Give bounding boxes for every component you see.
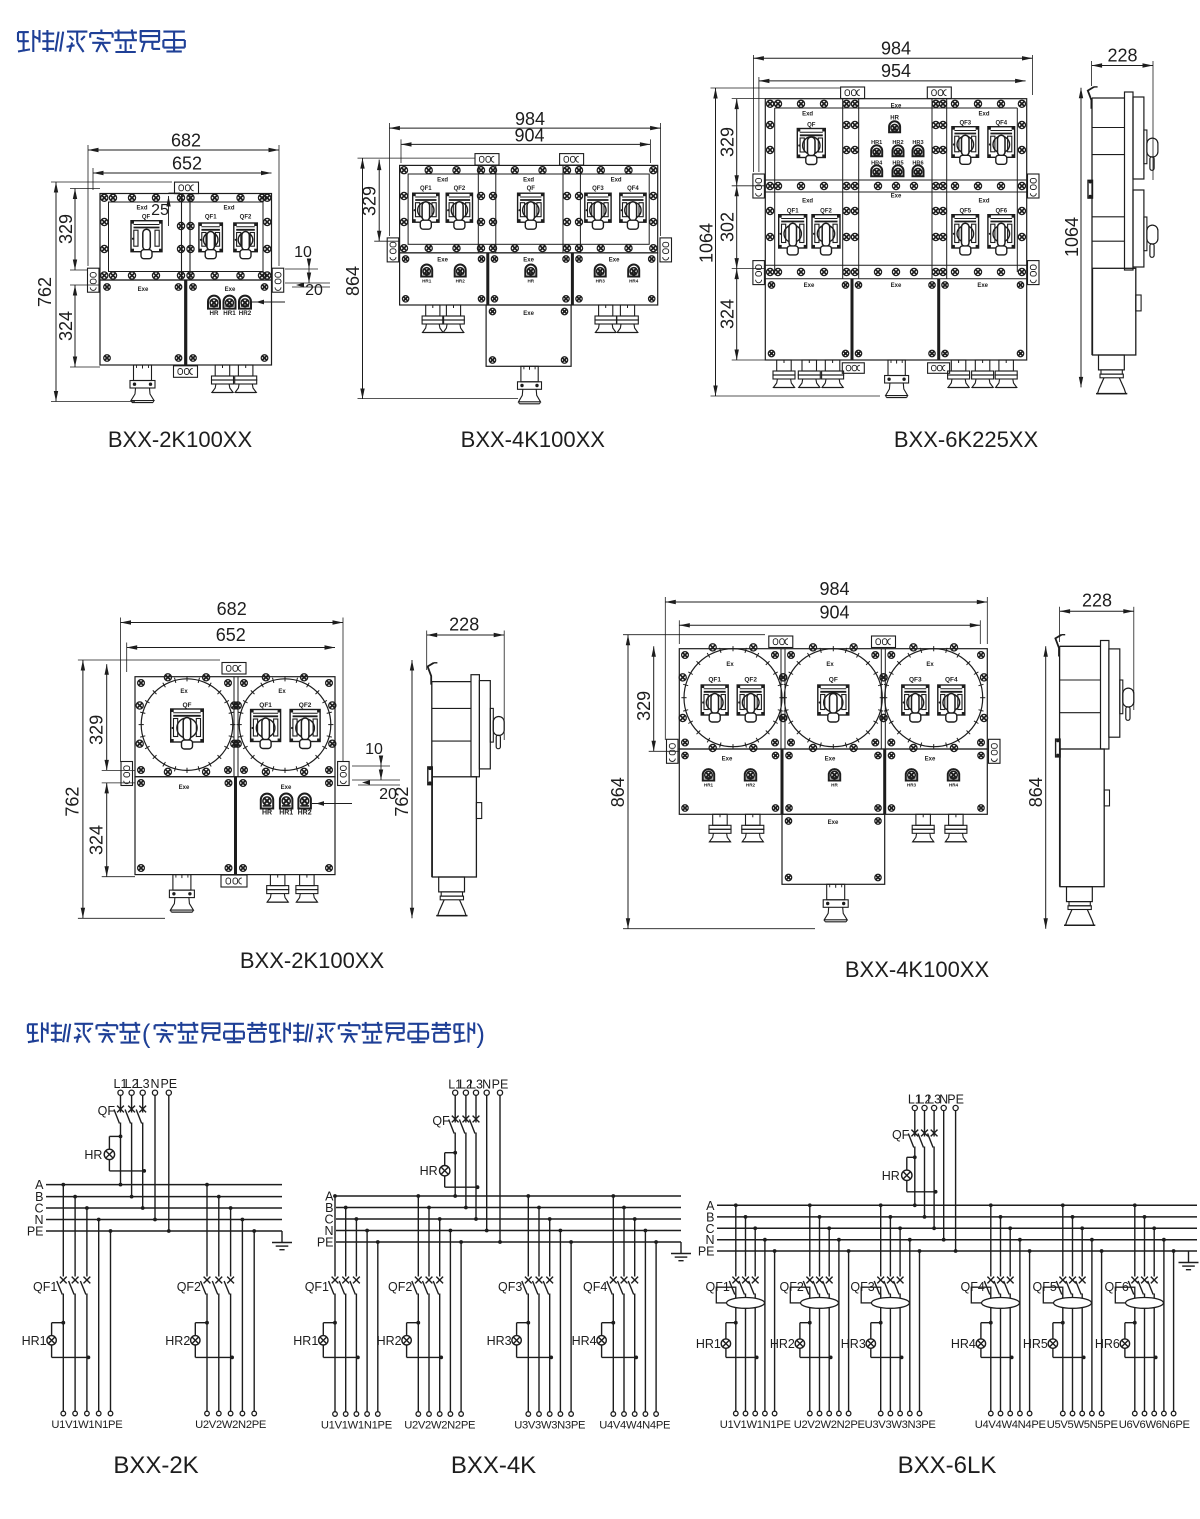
svg-text:HR3: HR3 [841,1337,866,1351]
svg-text:QF: QF [892,1128,910,1142]
svg-text:324: 324 [718,299,738,329]
svg-text:QF: QF [182,702,191,709]
svg-text:QF3: QF3 [909,677,922,684]
svg-text:652: 652 [172,154,202,174]
svg-text:864: 864 [608,777,628,807]
svg-text:U1V1W1N1PE: U1V1W1N1PE [321,1420,392,1432]
svg-text:L3: L3 [469,1078,483,1092]
svg-text:BXX-2K100XX: BXX-2K100XX [108,427,253,452]
svg-text:Exe: Exe [825,757,836,763]
svg-text:Exe: Exe [722,757,733,763]
svg-text:Ex: Ex [180,689,188,695]
svg-text:QF1: QF1 [305,1280,329,1294]
svg-text:U2V2W2N2PE: U2V2W2N2PE [404,1420,475,1432]
svg-text:HR2: HR2 [746,783,756,788]
svg-text:HR1: HR1 [422,279,432,284]
svg-text:L3: L3 [136,1077,150,1091]
svg-text:904: 904 [514,126,544,146]
svg-text:QF4: QF4 [583,1280,607,1294]
svg-text:PE: PE [492,1078,509,1092]
svg-text:Exd: Exd [523,178,534,184]
svg-text:PE: PE [947,1093,964,1107]
svg-text:QF: QF [142,215,151,221]
svg-text:329: 329 [87,715,107,745]
svg-text:U4V4W4N4PE: U4V4W4N4PE [599,1420,670,1432]
svg-text:Exe: Exe [138,287,149,293]
svg-text:Exd: Exd [978,199,989,205]
svg-text:PE: PE [317,1236,334,1250]
svg-text:QF4: QF4 [945,677,958,684]
svg-text:HR: HR [262,810,272,817]
svg-text:Exe: Exe [523,258,534,264]
svg-text:329: 329 [718,127,738,157]
svg-text:Ex: Ex [826,662,834,668]
svg-text:HR4: HR4 [629,279,639,284]
svg-text:U1V1W1N1PE: U1V1W1N1PE [51,1419,122,1431]
svg-text:762: 762 [62,787,82,817]
svg-text:Exd: Exd [802,111,813,117]
svg-text:QF3: QF3 [592,186,604,192]
svg-text:Exe: Exe [828,820,839,826]
svg-text:329: 329 [360,186,380,216]
svg-text:228: 228 [1082,590,1112,610]
svg-text:Exe: Exe [891,103,902,109]
svg-text:864: 864 [1026,777,1046,807]
svg-text:Ex: Ex [926,662,934,668]
svg-text:984: 984 [819,579,849,599]
svg-text:BXX-2K100XX: BXX-2K100XX [240,948,385,973]
svg-text:): ) [476,1021,485,1049]
svg-text:QF3: QF3 [959,121,971,127]
svg-text:Exe: Exe [179,785,190,791]
svg-text:Exe: Exe [437,258,448,264]
svg-text:Ex: Ex [278,689,286,695]
svg-text:20: 20 [305,282,323,299]
svg-text:QF: QF [432,1114,450,1128]
svg-text:864: 864 [343,266,363,296]
svg-text:Exe: Exe [925,757,936,763]
svg-text:HR6: HR6 [1095,1337,1120,1351]
svg-text:QF2: QF2 [820,208,832,214]
svg-text:(: ( [142,1021,151,1049]
svg-text:BXX-6K225XX: BXX-6K225XX [894,427,1039,452]
svg-text:682: 682 [171,131,201,151]
svg-text:HR3: HR3 [907,783,917,788]
svg-text:Exe: Exe [609,258,620,264]
svg-text:HR5: HR5 [1023,1337,1048,1351]
svg-text:1064: 1064 [697,223,717,263]
svg-text:QF2: QF2 [744,677,757,684]
svg-text:U4V4W4N4PE: U4V4W4N4PE [975,1419,1046,1431]
svg-text:QF: QF [527,186,536,192]
svg-text:BXX-6LK: BXX-6LK [898,1452,997,1479]
svg-text:Exd: Exd [978,111,989,117]
svg-text:QF6: QF6 [995,208,1007,214]
svg-text:U2V2W2N2PE: U2V2W2N2PE [195,1419,266,1431]
svg-text:302: 302 [718,212,738,242]
svg-text:Exd: Exd [223,206,234,212]
svg-text:HR: HR [882,1169,900,1183]
svg-text:904: 904 [819,603,849,623]
svg-text:QF2: QF2 [299,702,312,709]
svg-text:PE: PE [27,1225,44,1239]
svg-text:QF1: QF1 [259,702,272,709]
svg-text:954: 954 [881,61,911,81]
svg-text:PE: PE [698,1245,715,1259]
svg-text:Ex: Ex [726,662,734,668]
svg-text:QF1: QF1 [205,215,217,221]
svg-text:652: 652 [216,625,246,645]
svg-text:329: 329 [634,691,654,721]
svg-text:N: N [150,1077,159,1091]
svg-text:HR2: HR2 [239,310,252,317]
svg-text:BXX-4K100XX: BXX-4K100XX [461,427,606,452]
svg-text:Exe: Exe [804,283,815,289]
svg-text:HR: HR [420,1164,438,1178]
svg-text:QF1: QF1 [787,208,799,214]
svg-text:HR1: HR1 [279,810,293,817]
svg-text:Exe: Exe [281,785,292,791]
svg-text:HR: HR [210,310,219,317]
svg-text:Exe: Exe [225,287,236,293]
svg-text:HR2: HR2 [298,810,312,817]
svg-text:HR2: HR2 [377,1334,402,1348]
svg-text:U6V6W6N6PE: U6V6W6N6PE [1119,1419,1190,1431]
svg-text:10: 10 [294,244,312,261]
svg-text:HR: HR [527,279,534,284]
svg-text:HR1: HR1 [696,1337,721,1351]
svg-text:Exe: Exe [977,283,988,289]
svg-text:HR2: HR2 [770,1337,795,1351]
svg-text:329: 329 [56,214,76,244]
svg-text:HR: HR [831,783,838,788]
svg-text:HR: HR [84,1148,102,1162]
svg-text:U1V1W1N1PE: U1V1W1N1PE [720,1419,791,1431]
svg-text:Exe: Exe [523,311,534,317]
svg-text:324: 324 [56,311,76,341]
svg-text:HR2: HR2 [456,279,466,284]
svg-text:QF1: QF1 [33,1280,57,1294]
svg-text:Exd: Exd [611,178,622,184]
svg-text:228: 228 [1107,46,1137,66]
svg-text:HR4: HR4 [572,1334,597,1348]
svg-text:HR1: HR1 [22,1334,47,1348]
svg-text:QF3: QF3 [498,1280,522,1294]
svg-text:984: 984 [881,39,911,59]
svg-text:Exd: Exd [437,178,448,184]
svg-text:U2V2W2N2PE: U2V2W2N2PE [794,1419,865,1431]
svg-text:HR3: HR3 [596,279,606,284]
svg-text:762: 762 [35,277,55,307]
svg-text:Exd: Exd [136,206,147,212]
svg-text:QF2: QF2 [388,1280,412,1294]
svg-text:324: 324 [87,825,107,855]
svg-text:U3V3W3N3PE: U3V3W3N3PE [514,1420,585,1432]
svg-text:QF2: QF2 [454,186,466,192]
svg-text:HR1: HR1 [704,783,714,788]
svg-text:20: 20 [379,786,397,803]
svg-text:QF: QF [807,122,816,128]
svg-text:BXX-2K: BXX-2K [113,1452,198,1479]
svg-text:HR4: HR4 [949,783,959,788]
svg-text:QF: QF [98,1104,116,1118]
svg-text:QF: QF [829,677,838,684]
svg-text:QF4: QF4 [995,121,1007,127]
svg-text:682: 682 [217,599,247,619]
svg-text:HR2: HR2 [165,1334,190,1348]
svg-text:HR1: HR1 [223,310,236,317]
svg-text:QF5: QF5 [959,208,971,214]
svg-text:BXX-4K: BXX-4K [451,1452,536,1479]
svg-text:U3V3W3N3PE: U3V3W3N3PE [865,1419,936,1431]
svg-text:10: 10 [365,741,383,758]
svg-text:Exe: Exe [891,283,902,289]
svg-text:HR3: HR3 [487,1334,512,1348]
svg-text:QF1: QF1 [708,677,721,684]
svg-text:BXX-4K100XX: BXX-4K100XX [845,957,990,982]
svg-text:U5V5W5N5PE: U5V5W5N5PE [1047,1419,1118,1431]
svg-text:Exe: Exe [891,194,902,200]
svg-text:25: 25 [151,202,169,219]
svg-text:QF4: QF4 [627,186,639,192]
svg-text:Exd: Exd [802,199,813,205]
svg-text:QF2: QF2 [240,215,252,221]
svg-text:QF1: QF1 [420,186,432,192]
svg-text:228: 228 [449,615,479,635]
svg-text:PE: PE [160,1077,177,1091]
svg-text:N: N [482,1078,491,1092]
svg-text:QF2: QF2 [177,1280,201,1294]
svg-text:HR4: HR4 [951,1337,976,1351]
svg-text:HR1: HR1 [293,1334,318,1348]
svg-text:1064: 1064 [1062,217,1082,257]
